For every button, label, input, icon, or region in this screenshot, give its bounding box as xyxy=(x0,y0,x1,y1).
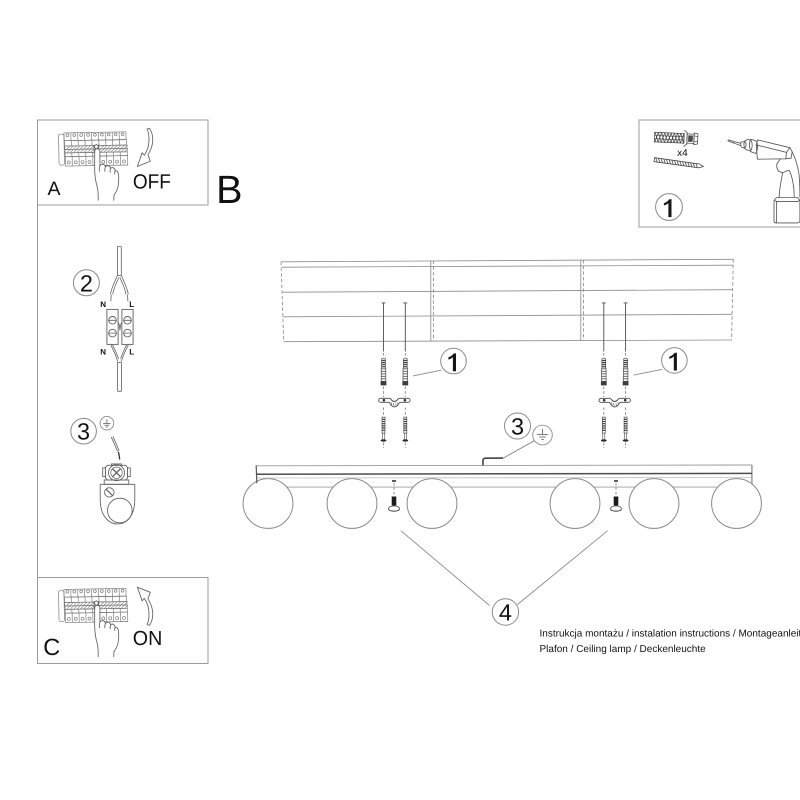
svg-text:N: N xyxy=(100,300,106,309)
svg-text:C: C xyxy=(43,634,60,660)
svg-text:N: N xyxy=(100,347,106,356)
svg-text:L: L xyxy=(129,347,134,356)
svg-text:x4: x4 xyxy=(677,148,688,159)
svg-text:A: A xyxy=(48,178,61,200)
svg-text:Plafon / Ceiling lamp / Decken: Plafon / Ceiling lamp / Deckenleuchte xyxy=(540,644,707,655)
svg-text:Instrukcja montażu / instalati: Instrukcja montażu / instalation instruc… xyxy=(540,629,800,640)
svg-text:ON: ON xyxy=(133,628,163,650)
svg-text:3: 3 xyxy=(511,414,524,440)
svg-text:4: 4 xyxy=(499,600,512,626)
svg-text:3: 3 xyxy=(77,419,90,445)
svg-text:OFF: OFF xyxy=(133,171,171,194)
svg-text:L: L xyxy=(129,300,134,309)
svg-text:2: 2 xyxy=(80,270,93,296)
svg-text:B: B xyxy=(216,168,242,212)
